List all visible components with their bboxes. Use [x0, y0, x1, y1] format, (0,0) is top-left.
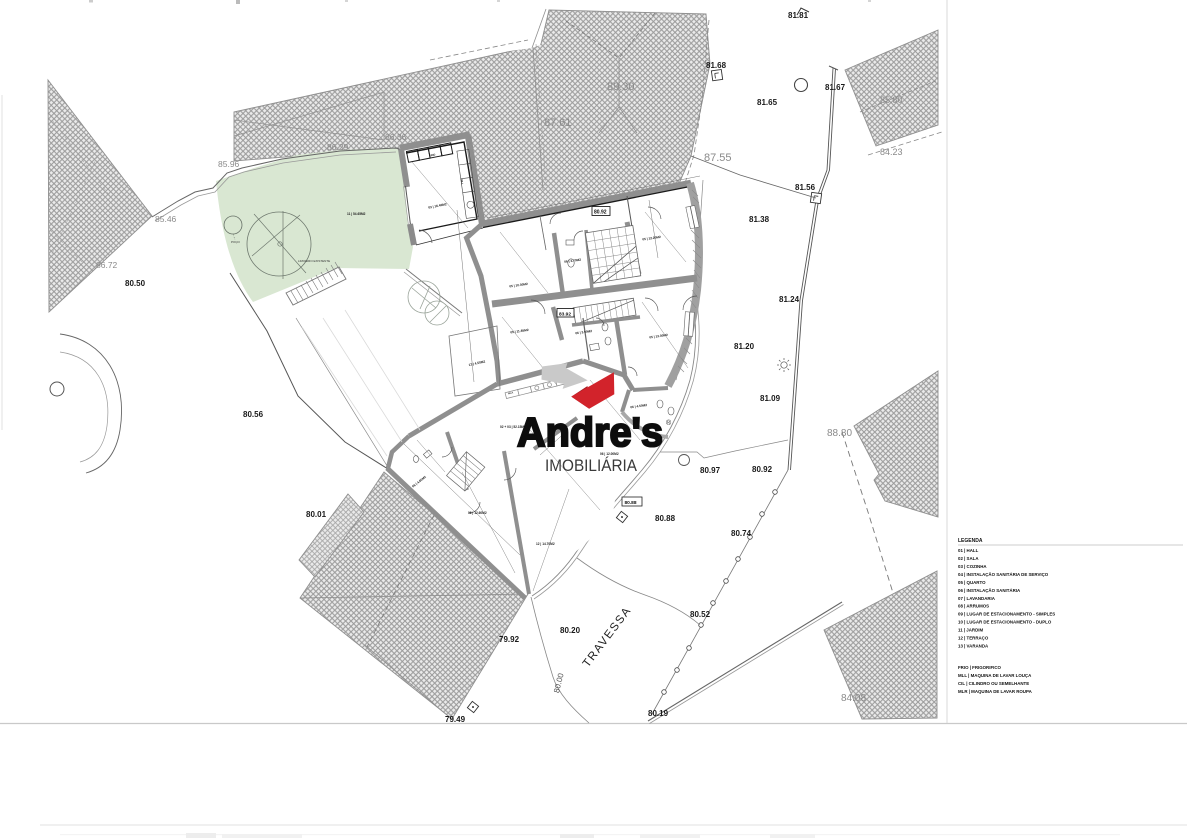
svg-text:81.56: 81.56	[795, 183, 816, 192]
svg-text:07 | LAVANDARIA: 07 | LAVANDARIA	[958, 596, 996, 601]
svg-text:FRIO | FRIGORIFICO: FRIO | FRIGORIFICO	[958, 665, 1002, 670]
svg-text:08 | ARRUMOS: 08 | ARRUMOS	[958, 604, 989, 609]
svg-text:12 | TERRAÇO: 12 | TERRAÇO	[958, 636, 989, 641]
svg-text:80.74: 80.74	[731, 529, 752, 538]
svg-text:80.01: 80.01	[306, 510, 327, 519]
svg-text:79.49: 79.49	[445, 715, 466, 724]
svg-text:MLL | MAQUINA DE LAVAR LOUÇA: MLL | MAQUINA DE LAVAR LOUÇA	[958, 673, 1032, 678]
svg-text:80.50: 80.50	[125, 279, 146, 288]
svg-text:89.30: 89.30	[607, 81, 635, 93]
svg-text:85.96: 85.96	[218, 159, 240, 169]
svg-text:81.67: 81.67	[825, 83, 846, 92]
svg-text:80.52: 80.52	[690, 610, 711, 619]
svg-text:10 | LUGAR DE ESTACIONAMENTO -: 10 | LUGAR DE ESTACIONAMENTO - DUPLO	[958, 620, 1052, 625]
svg-text:11 | JARDIM: 11 | JARDIM	[958, 628, 983, 633]
svg-text:80.20: 80.20	[560, 626, 581, 635]
svg-text:Andre's: Andre's	[517, 409, 663, 455]
svg-text:04 | INSTALAÇÃO SANITÁRIA DE S: 04 | INSTALAÇÃO SANITÁRIA DE SERVIÇO	[958, 572, 1049, 577]
svg-text:80.88: 80.88	[625, 500, 637, 506]
svg-text:80.56: 80.56	[243, 410, 264, 419]
svg-text:12 | 14.70M2: 12 | 14.70M2	[536, 542, 555, 546]
svg-text:®: ®	[666, 419, 672, 427]
svg-text:06 | 12.60M2: 06 | 12.60M2	[468, 511, 487, 515]
svg-text:13 | VARANDA: 13 | VARANDA	[958, 644, 989, 649]
svg-text:88.80: 88.80	[827, 428, 852, 439]
svg-text:06 | INSTALAÇÃO SANITÁRIA: 06 | INSTALAÇÃO SANITÁRIA	[958, 588, 1021, 593]
svg-text:IMOBILIÁRIA: IMOBILIÁRIA	[545, 456, 637, 475]
svg-text:MLR | MAQUINA DE LAVAR ROUPA: MLR | MAQUINA DE LAVAR ROUPA	[958, 689, 1033, 694]
svg-text:79.92: 79.92	[499, 635, 520, 644]
svg-text:02 | SALA: 02 | SALA	[958, 556, 979, 561]
svg-text:LIMOEIRO EXISTENTE: LIMOEIRO EXISTENTE	[298, 259, 330, 263]
svg-text:83.92: 83.92	[559, 311, 571, 317]
svg-text:81.68: 81.68	[706, 61, 727, 70]
svg-text:85.80: 85.80	[880, 95, 903, 105]
svg-text:85.46: 85.46	[155, 214, 177, 224]
svg-text:86.36: 86.36	[385, 132, 407, 142]
svg-text:81.38: 81.38	[749, 215, 770, 224]
svg-text:84.08: 84.08	[841, 693, 866, 704]
svg-text:LEGENDA: LEGENDA	[958, 538, 983, 544]
svg-text:01 | HALL: 01 | HALL	[958, 548, 979, 553]
svg-text:81.81: 81.81	[788, 11, 809, 20]
svg-text:80.92: 80.92	[594, 210, 607, 216]
svg-text:80.97: 80.97	[700, 466, 721, 475]
svg-text:80.19: 80.19	[648, 709, 669, 718]
svg-text:86.29: 86.29	[327, 142, 349, 152]
svg-text:POÇO: POÇO	[231, 240, 241, 244]
svg-text:87.55: 87.55	[704, 152, 732, 164]
svg-text:80.92: 80.92	[752, 465, 773, 474]
svg-text:03 | COZINHA: 03 | COZINHA	[958, 564, 987, 569]
svg-text:81.24: 81.24	[779, 295, 800, 304]
svg-text:87.61: 87.61	[544, 117, 572, 129]
svg-text:84.23: 84.23	[880, 147, 903, 157]
svg-text:09 | LUGAR DE ESTACIONAMENTO -: 09 | LUGAR DE ESTACIONAMENTO - SIMPLES	[958, 612, 1055, 617]
svg-text:CIL | CILINDRO OU SEMELHANTE: CIL | CILINDRO OU SEMELHANTE	[958, 681, 1029, 686]
svg-text:05 | QUARTO: 05 | QUARTO	[958, 580, 986, 585]
svg-text:81.20: 81.20	[734, 342, 755, 351]
svg-text:80.88: 80.88	[655, 514, 676, 523]
svg-text:81.09: 81.09	[760, 394, 781, 403]
svg-text:81.65: 81.65	[757, 98, 778, 107]
svg-text:86.72: 86.72	[96, 260, 118, 270]
svg-text:11 | 54.65M2: 11 | 54.65M2	[347, 212, 366, 216]
